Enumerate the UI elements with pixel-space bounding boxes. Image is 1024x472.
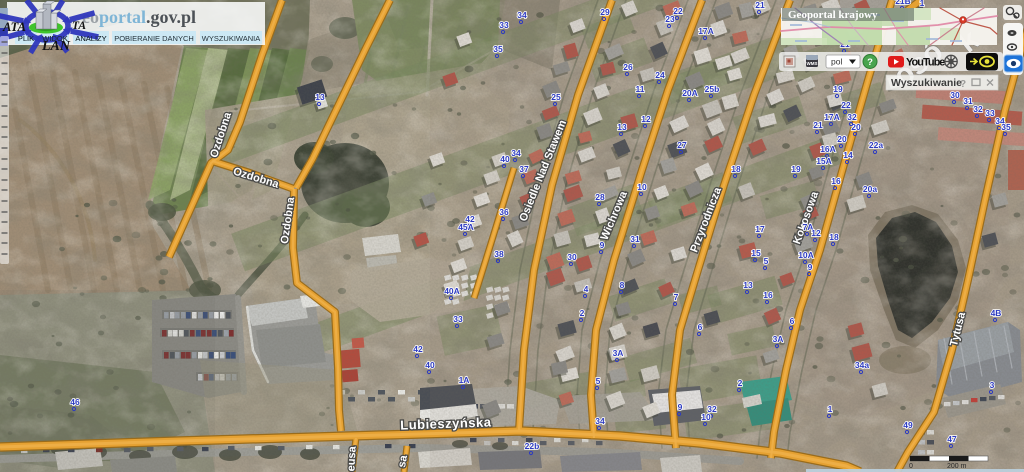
svg-text:31: 31 <box>630 234 640 244</box>
svg-text:200 m: 200 m <box>947 463 967 470</box>
svg-text:6: 6 <box>698 322 703 332</box>
svg-text:32: 32 <box>847 112 857 122</box>
svg-text:?: ? <box>960 79 966 90</box>
svg-text:28: 28 <box>595 192 605 202</box>
svg-text:10: 10 <box>637 182 647 192</box>
svg-text:2: 2 <box>738 378 743 388</box>
svg-text:20: 20 <box>837 134 847 144</box>
svg-text:pol: pol <box>831 57 842 67</box>
svg-text:5: 5 <box>764 256 769 266</box>
svg-text:20a: 20a <box>863 184 877 194</box>
svg-text:3A: 3A <box>613 348 624 358</box>
svg-text:2: 2 <box>580 308 585 318</box>
svg-text:22b: 22b <box>525 441 540 451</box>
svg-text:40: 40 <box>425 360 435 370</box>
svg-text:Geoportal krajowy: Geoportal krajowy <box>788 9 878 21</box>
svg-text:22: 22 <box>673 6 683 16</box>
svg-text:13: 13 <box>743 280 753 290</box>
svg-text:18: 18 <box>829 232 839 242</box>
svg-text:10: 10 <box>701 412 711 422</box>
svg-text:YouTube: YouTube <box>906 57 945 69</box>
svg-text:15A: 15A <box>816 156 832 166</box>
svg-text:34: 34 <box>595 416 605 426</box>
svg-text:34a: 34a <box>855 360 869 370</box>
svg-text:4B: 4B <box>991 308 1002 318</box>
svg-text:POBIERANIE DANYCH: POBIERANIE DANYCH <box>114 34 194 43</box>
svg-text:12: 12 <box>641 114 651 124</box>
svg-text:21: 21 <box>813 120 823 130</box>
svg-text:11: 11 <box>636 84 645 94</box>
svg-text:37: 37 <box>519 164 529 174</box>
svg-text:22: 22 <box>841 100 851 110</box>
svg-text:17A: 17A <box>698 26 714 36</box>
svg-text:4: 4 <box>584 284 589 294</box>
svg-text:19: 19 <box>791 164 801 174</box>
svg-text:1: 1 <box>920 0 925 8</box>
svg-text:19: 19 <box>833 84 843 94</box>
svg-text:20A: 20A <box>682 88 698 98</box>
svg-text:TA: TA <box>72 20 86 32</box>
svg-text:9: 9 <box>678 402 683 412</box>
svg-text:22a: 22a <box>869 140 883 150</box>
svg-text:17A: 17A <box>824 112 840 122</box>
svg-text:12: 12 <box>811 228 821 238</box>
svg-text:49: 49 <box>903 420 913 430</box>
svg-text:WIDOK: WIDOK <box>42 34 67 43</box>
svg-text:3: 3 <box>990 380 995 390</box>
svg-text:3A: 3A <box>773 334 784 344</box>
svg-text:1: 1 <box>828 404 833 414</box>
svg-text:14: 14 <box>843 150 853 160</box>
svg-text:Wyszukiwanie: Wyszukiwanie <box>891 77 962 89</box>
svg-text:47: 47 <box>947 434 957 444</box>
svg-text:40: 40 <box>500 154 510 164</box>
svg-text:6: 6 <box>790 316 795 326</box>
svg-text:30: 30 <box>950 90 960 100</box>
svg-text:16A: 16A <box>820 144 836 154</box>
svg-text:35: 35 <box>1001 122 1011 132</box>
svg-text:46: 46 <box>70 397 80 407</box>
svg-text:35: 35 <box>493 44 503 54</box>
svg-text:31: 31 <box>963 96 973 106</box>
svg-text:16: 16 <box>831 176 841 186</box>
svg-text:25b: 25b <box>705 84 720 94</box>
svg-text:Lubieszyńska: Lubieszyńska <box>400 414 492 432</box>
svg-text:27: 27 <box>677 140 687 150</box>
svg-text:1A: 1A <box>459 375 470 385</box>
svg-text:9: 9 <box>600 240 605 250</box>
svg-text:38: 38 <box>494 249 504 259</box>
svg-text:18: 18 <box>731 164 741 174</box>
svg-text:21: 21 <box>755 0 765 10</box>
svg-text:7: 7 <box>674 292 679 302</box>
svg-text:25: 25 <box>551 92 561 102</box>
svg-text:13: 13 <box>617 122 627 132</box>
svg-text:5: 5 <box>596 376 601 386</box>
svg-text:34: 34 <box>517 10 527 20</box>
svg-text:32: 32 <box>973 104 983 114</box>
svg-text:29: 29 <box>600 7 610 17</box>
svg-text:26: 26 <box>623 62 633 72</box>
svg-text:24: 24 <box>655 70 665 80</box>
svg-text:PLIK: PLIK <box>18 34 34 43</box>
svg-text:0: 0 <box>909 463 913 470</box>
svg-text:WMS: WMS <box>807 61 818 66</box>
svg-text:15: 15 <box>751 248 761 258</box>
svg-text:eusa: eusa <box>345 445 358 472</box>
svg-text:ATA: ATA <box>2 20 26 34</box>
svg-text:eoportal.gov.pl: eoportal.gov.pl <box>82 7 196 27</box>
svg-text:16: 16 <box>763 290 773 300</box>
svg-text:17: 17 <box>755 224 765 234</box>
svg-text:40A: 40A <box>444 286 460 296</box>
svg-text:34: 34 <box>511 148 521 158</box>
svg-text:21B: 21B <box>895 0 911 6</box>
svg-text:?: ? <box>867 57 873 68</box>
svg-text:42: 42 <box>413 344 423 354</box>
svg-text:8: 8 <box>620 280 625 290</box>
svg-text:33: 33 <box>499 20 509 30</box>
svg-text:9: 9 <box>808 262 813 272</box>
svg-text:10A: 10A <box>798 250 814 260</box>
svg-text:45A: 45A <box>458 222 474 232</box>
svg-text:13: 13 <box>315 92 325 102</box>
svg-text:30: 30 <box>567 252 577 262</box>
svg-text:WYSZUKIWANIA: WYSZUKIWANIA <box>202 34 260 43</box>
svg-text:ANALIZY: ANALIZY <box>75 34 106 43</box>
svg-text:36: 36 <box>499 207 509 217</box>
svg-text:33: 33 <box>985 108 995 118</box>
svg-text:33: 33 <box>453 314 463 324</box>
